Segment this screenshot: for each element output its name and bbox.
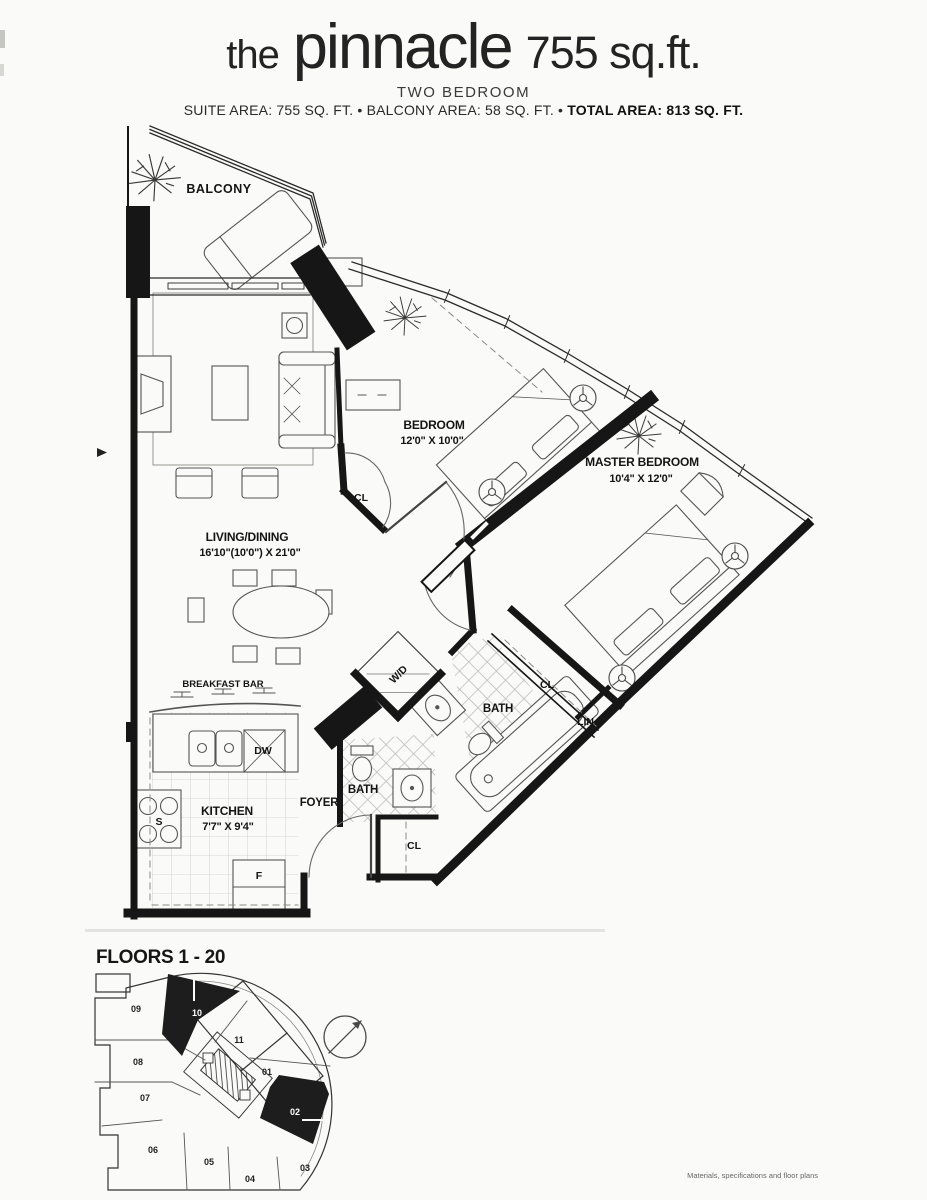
sofa xyxy=(279,352,335,448)
dresser xyxy=(346,380,400,410)
foyer-label: FOYER xyxy=(300,797,340,809)
fridge-icon xyxy=(233,860,285,912)
bedroom-dims: 12'0" X 10'0" xyxy=(400,435,463,447)
balcony-label: BALCONY xyxy=(186,182,251,196)
keyplan-unit-05: 05 xyxy=(204,1157,214,1167)
toilet-icon xyxy=(351,746,373,781)
keyplan-unit-04: 04 xyxy=(245,1174,255,1184)
dining-set xyxy=(188,570,332,664)
areas-total: TOTAL AREA: 813 SQ. FT. xyxy=(567,102,743,118)
tv-console xyxy=(135,356,171,432)
lamp-table-icon xyxy=(722,543,748,569)
stove-label: S xyxy=(155,816,162,828)
corner-chair xyxy=(681,468,728,515)
plant-icon xyxy=(130,155,181,201)
dining-table xyxy=(233,586,329,638)
master-bedroom-dims: 10'4" X 12'0" xyxy=(609,473,672,485)
bath2-label: BATH xyxy=(348,784,378,796)
title-name: pinnacle xyxy=(293,16,512,79)
bath2-sink-icon xyxy=(393,769,431,807)
kitchen-dims: 7'7" X 9'4" xyxy=(202,821,253,833)
keyplan-unit-03: 03 xyxy=(300,1163,310,1173)
bedroom-closet-label: CL xyxy=(354,492,369,504)
bath-label: BATH xyxy=(483,703,513,715)
compass-icon xyxy=(324,1016,366,1058)
header: the pinnacle 755 sq.ft. TWO BEDROOM SUIT… xyxy=(0,16,927,117)
areas-left: SUITE AREA: 755 SQ. FT. • BALCONY AREA: … xyxy=(184,102,563,118)
floor-plan-svg: W/D xyxy=(0,0,927,1200)
keyplan-unit-07: 07 xyxy=(140,1093,150,1103)
subtitle: TWO BEDROOM xyxy=(0,85,927,100)
page-title: the pinnacle 755 sq.ft. xyxy=(0,16,927,79)
bedroom-name: BEDROOM xyxy=(403,418,464,432)
suite-plan: W/D xyxy=(126,126,812,916)
lounge-chair xyxy=(201,187,315,292)
keyplan-unit-08: 08 xyxy=(133,1057,143,1067)
living-name: LIVING/DINING xyxy=(206,530,289,544)
dishwasher-label: DW xyxy=(254,745,272,757)
fridge-label: F xyxy=(256,870,263,882)
master-closet-label: CL xyxy=(540,679,555,691)
title-prefix: the xyxy=(226,35,279,75)
title-size: 755 sq.ft. xyxy=(526,30,701,75)
lamp-table-icon xyxy=(570,385,596,411)
living-dims: 16'10"(10'0") X 21'0" xyxy=(199,547,300,559)
kitchen-sink-icon xyxy=(189,731,242,766)
keyplan-unit-06: 06 xyxy=(148,1145,158,1155)
keyplan-unit-02: 02 xyxy=(290,1107,300,1117)
key-plan: FLOORS 1 - 20 xyxy=(95,947,366,1190)
keyplan-unit-09: 09 xyxy=(131,1004,141,1014)
end-table xyxy=(282,313,307,338)
linen-label: LIN. xyxy=(577,716,597,728)
accent-chairs xyxy=(176,468,278,498)
areas-line: SUITE AREA: 755 SQ. FT. • BALCONY AREA: … xyxy=(0,103,927,117)
fine-print: Materials, specifications and floor plan… xyxy=(687,1171,818,1180)
breakfast-bar-label: BREAKFAST BAR xyxy=(182,679,263,690)
lamp-table-icon xyxy=(479,479,505,505)
key-plan-title: FLOORS 1 - 20 xyxy=(96,947,225,968)
kitchen-name: KITCHEN xyxy=(201,804,253,818)
plant-icon xyxy=(384,297,426,335)
keyplan-unit-01: 01 xyxy=(262,1067,272,1077)
keyplan-unit-10: 10 xyxy=(192,1008,202,1018)
coffee-table xyxy=(212,366,248,420)
master-bedroom-name: MASTER BEDROOM xyxy=(585,455,699,469)
floor-plan-page: the pinnacle 755 sq.ft. TWO BEDROOM SUIT… xyxy=(0,0,927,1200)
foyer-closet-label: CL xyxy=(407,840,422,852)
keyplan-unit-11: 11 xyxy=(234,1035,244,1045)
master-bed xyxy=(565,505,739,675)
breakfast-bar-counter xyxy=(150,704,300,712)
